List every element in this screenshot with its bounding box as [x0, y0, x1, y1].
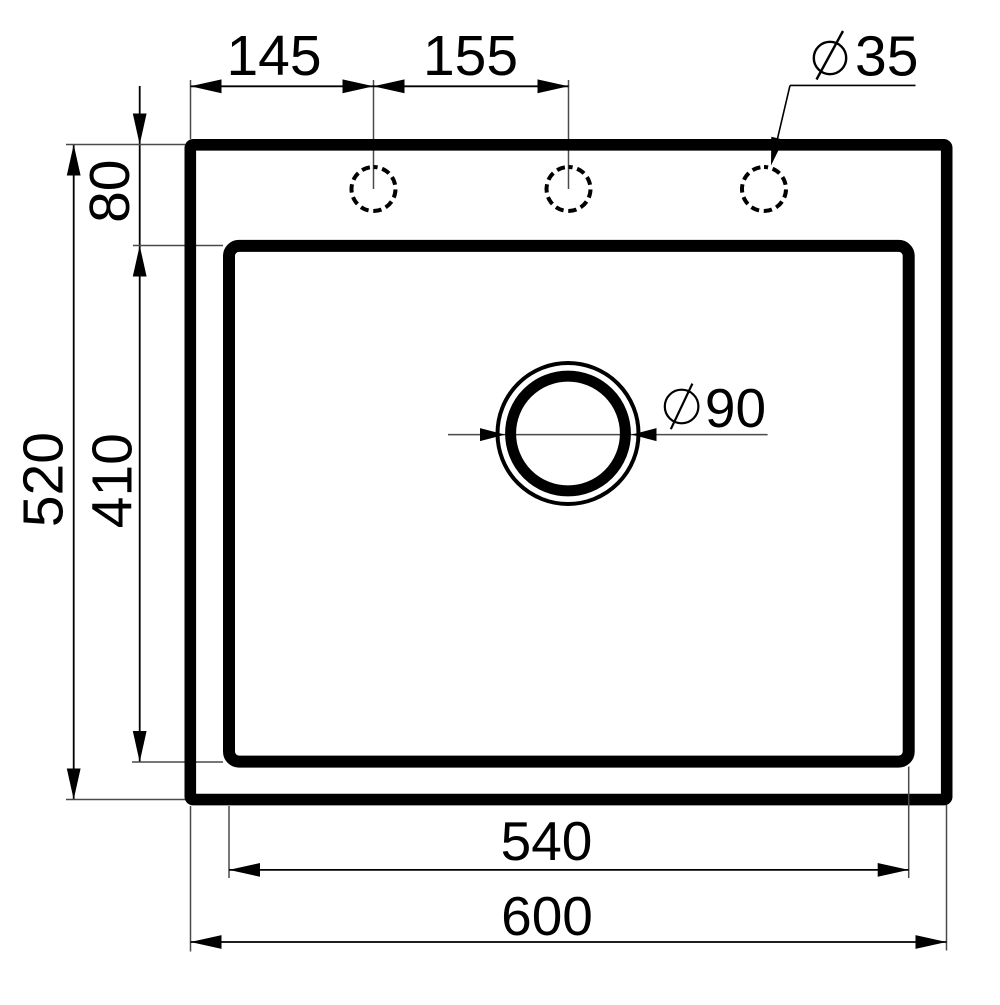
svg-text:35: 35	[855, 25, 918, 89]
svg-text:145: 145	[226, 24, 321, 88]
svg-text:90: 90	[705, 377, 766, 439]
svg-text:600: 600	[501, 885, 593, 947]
svg-text:80: 80	[78, 159, 142, 222]
svg-text:520: 520	[12, 432, 76, 527]
svg-text:540: 540	[501, 810, 593, 872]
svg-text:410: 410	[81, 433, 145, 528]
svg-text:155: 155	[423, 24, 518, 88]
